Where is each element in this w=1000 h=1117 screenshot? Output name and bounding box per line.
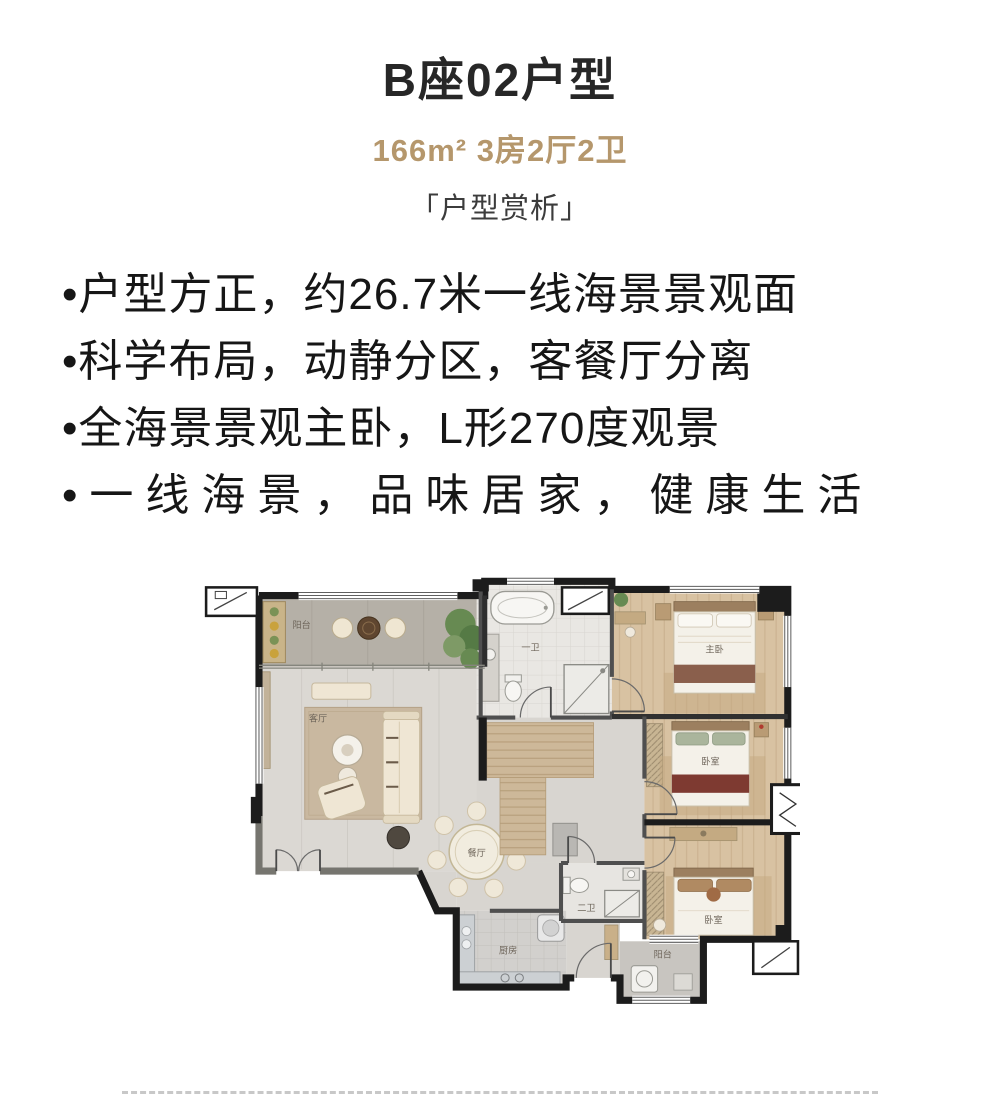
- nightstand: [656, 604, 671, 620]
- balcony-table: [358, 617, 380, 639]
- living-side-window: [254, 687, 263, 784]
- master-top-window: [670, 585, 759, 593]
- hall-runner-vertical: [500, 778, 546, 855]
- unit-title: B座02户型: [0, 0, 1000, 110]
- bedroom3-bottom-window: [649, 935, 698, 944]
- bathroom2-shower: [605, 890, 640, 916]
- bathroom2-toilet: [563, 877, 588, 893]
- master-side-window: [783, 616, 792, 687]
- mop-sink: [674, 974, 692, 990]
- ac-unit-top-left: [206, 587, 257, 615]
- plant-pot: [270, 621, 279, 630]
- sideboard: [553, 823, 577, 856]
- floor-plan: 阳台 客厅 餐厅 厨房 一卫 主卧 卧室 二卫 卧室 阳台: [200, 575, 800, 1033]
- ac-unit-right: [772, 785, 800, 834]
- balcony-window: [299, 591, 458, 600]
- room-label-master: 主卧: [705, 643, 723, 655]
- washer: [631, 966, 657, 992]
- flyer-page: B座02户型 166m² 3房2厅2卫 「户型赏析」 •户型方正，约26.7米一…: [0, 0, 1000, 1117]
- feature-list: •户型方正，约26.7米一线海景景观面 •科学布局，动静分区，客餐厅分离 •全海…: [62, 261, 1000, 529]
- kitchen-sink: [462, 940, 471, 949]
- bathroom1-toilet: [505, 675, 521, 701]
- feature-bullet-3: •全海景景观主卧，L形270度观景: [62, 395, 1000, 462]
- room-label-bedroom2: 卧室: [701, 755, 719, 767]
- plant-pot: [270, 636, 279, 645]
- bench: [312, 683, 371, 699]
- dressing-table: [615, 612, 646, 624]
- bathroom2-basin: [628, 871, 635, 878]
- planter: [387, 826, 409, 848]
- room-label-dining: 餐厅: [467, 847, 485, 859]
- room-label-bath1: 一卫: [521, 643, 539, 653]
- master-plant: [614, 592, 628, 606]
- plant-pot: [270, 649, 279, 658]
- dresser-mirror: [700, 830, 706, 836]
- stool: [654, 919, 666, 931]
- divider-dashed-line: [122, 1091, 878, 1094]
- balcony-chair: [332, 618, 352, 638]
- room-label-service-balcony: 阳台: [654, 949, 672, 961]
- bedroom2-side-window: [783, 728, 792, 779]
- room-label-balcony: 阳台: [293, 619, 311, 631]
- coffee-table-deco: [341, 744, 353, 756]
- feature-bullet-4: •一线海景，品味居家，健康生活: [62, 462, 1000, 529]
- room-label-bath2: 二卫: [577, 904, 595, 914]
- feature-bullet-2: •科学布局，动静分区，客餐厅分离: [62, 328, 1000, 395]
- bathtub: [491, 591, 554, 624]
- service-balcony-window: [632, 996, 690, 1005]
- section-title: 「户型赏析」: [0, 185, 1000, 227]
- shower: [564, 665, 609, 714]
- feature-bullet-1: •户型方正，约26.7米一线海景景观面: [62, 261, 1000, 328]
- room-label-bedroom3: 卧室: [704, 914, 722, 926]
- hall-runner: [487, 723, 594, 778]
- bathroom1-window: [507, 577, 554, 585]
- unit-specs: 166m² 3房2厅2卫: [0, 125, 1000, 170]
- room-label-living: 客厅: [309, 713, 327, 725]
- floor-plan-drawing: 阳台 客厅 餐厅 厨房 一卫 主卧 卧室 二卫 卧室 阳台: [200, 575, 800, 1033]
- room-label-kitchen: 厨房: [499, 944, 517, 956]
- balcony-chair: [385, 618, 405, 638]
- ac-duct-top: [562, 587, 609, 613]
- kitchen-sink: [462, 927, 471, 936]
- plant-pot: [270, 607, 279, 616]
- ac-unit-bottom-right: [753, 941, 798, 974]
- dressing-stool: [625, 627, 635, 637]
- sofa: [383, 711, 420, 823]
